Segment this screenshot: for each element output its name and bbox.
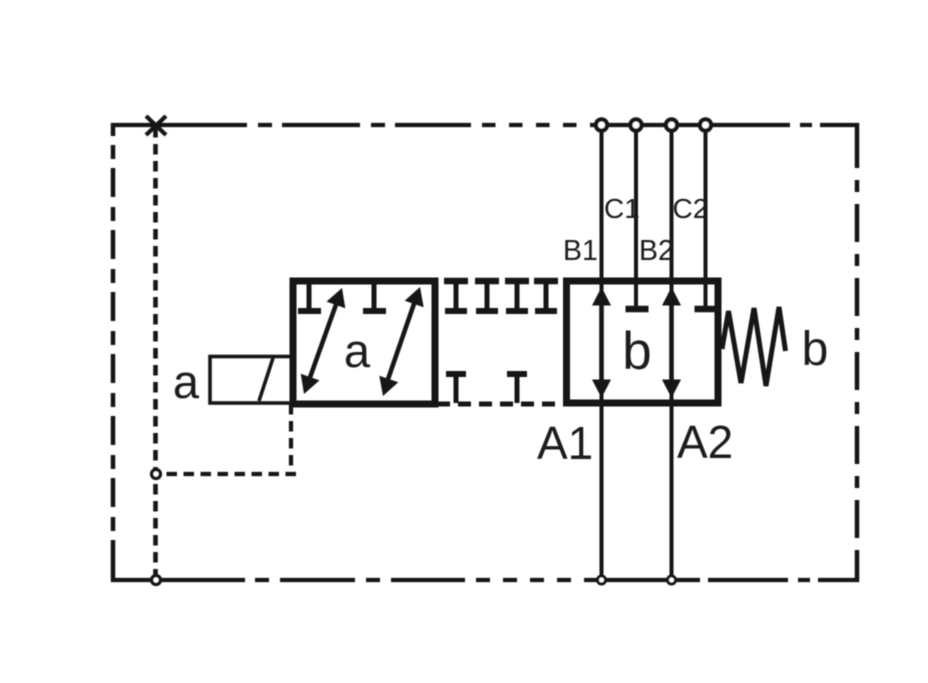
- svg-text:A1: A1: [537, 417, 593, 469]
- svg-text:a: a: [344, 324, 371, 377]
- svg-text:C2: C2: [673, 193, 709, 224]
- svg-text:b: b: [802, 323, 829, 376]
- svg-text:B2: B2: [639, 235, 674, 267]
- svg-text:a: a: [173, 355, 200, 408]
- svg-text:C1: C1: [604, 193, 640, 224]
- svg-text:b: b: [622, 322, 651, 381]
- svg-text:B1: B1: [563, 235, 598, 267]
- svg-text:A2: A2: [677, 416, 733, 468]
